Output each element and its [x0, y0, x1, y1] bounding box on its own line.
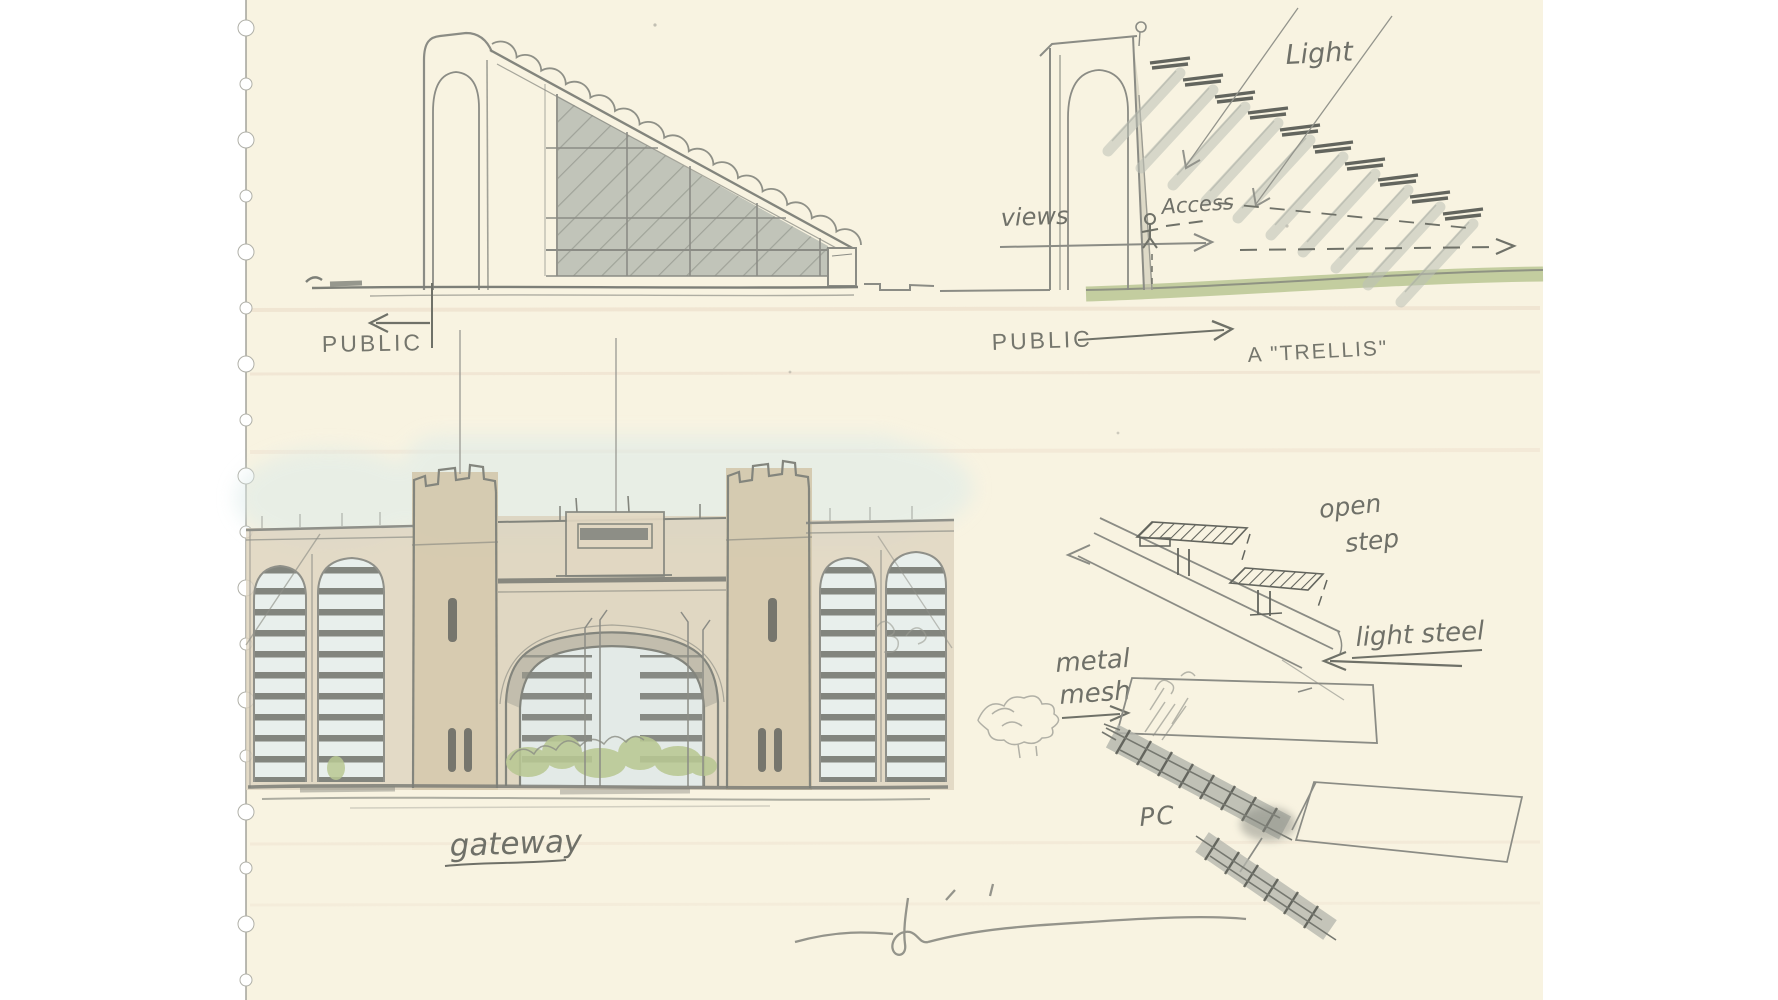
open-step-label-2: step [1344, 523, 1401, 557]
views-label: views [1000, 202, 1069, 232]
metal-mesh-label-2: mesh [1058, 676, 1131, 711]
sketchbook-scan: PUBLIC [0, 0, 1778, 1000]
light-label: Light [1285, 36, 1355, 71]
section-public-label: PUBLIC [322, 329, 424, 357]
trellis-public-label: PUBLIC [991, 325, 1093, 355]
pc-label: PC [1138, 801, 1176, 832]
end-block [828, 248, 856, 286]
sketch-canvas: PUBLIC [0, 0, 1778, 1000]
metal-mesh-label-1: metal [1054, 644, 1131, 679]
gateway-caption: gateway [449, 823, 583, 864]
